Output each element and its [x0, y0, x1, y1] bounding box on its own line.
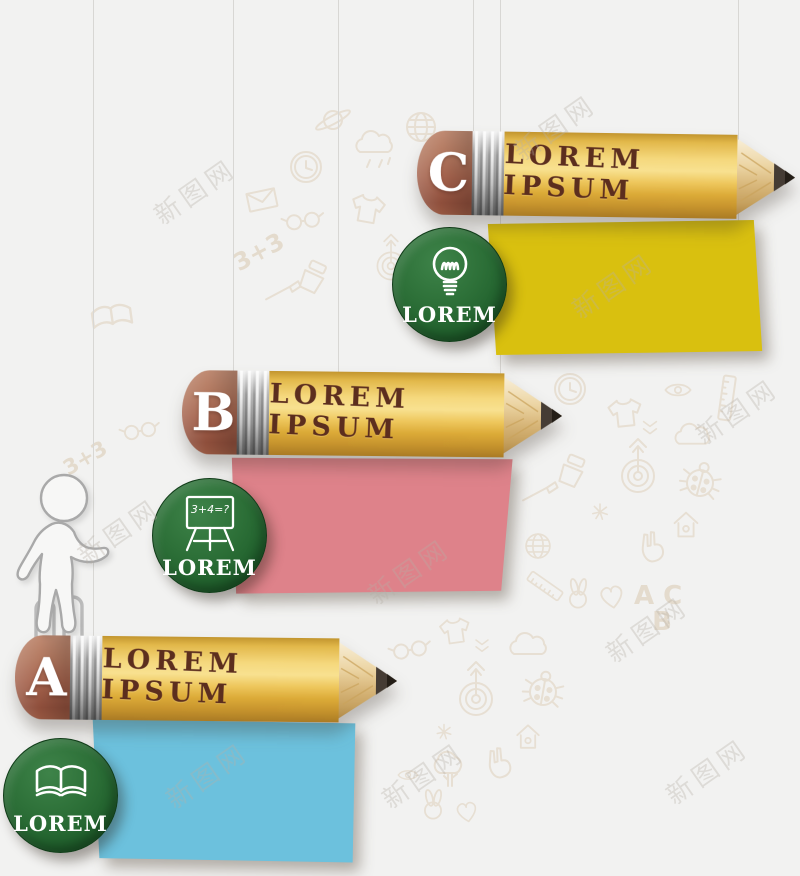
target-doodle-icon — [460, 662, 492, 715]
glasses-doodle-icon — [119, 421, 161, 441]
pencil-option-a: A LOREM IPSUM — [15, 635, 398, 723]
open-book-icon — [30, 756, 92, 808]
badge-reading: LOREM — [3, 738, 118, 853]
badge-label: LOREM — [402, 302, 497, 327]
globe-doodle-icon — [526, 534, 550, 558]
rain-cloud-doodle-icon — [356, 131, 392, 167]
eye-doodle-icon — [665, 385, 690, 396]
ruler-doodle-icon — [527, 571, 563, 601]
t-shirt-doodle-icon — [608, 398, 643, 427]
pencil-body: LOREM IPSUM — [503, 132, 737, 219]
hanging-string — [473, 0, 474, 136]
pencil-tip-icon — [736, 135, 795, 220]
leaf-doodle-icon — [593, 504, 607, 519]
pencil-label: LOREM IPSUM — [503, 139, 739, 212]
pencil-eraser-cap: B — [182, 370, 238, 455]
pencil-option-b: B LOREM IPSUM — [182, 370, 563, 458]
stick-figure-icon — [12, 470, 116, 642]
hanging-string — [338, 0, 339, 372]
paint-tube-doodle-icon — [298, 259, 328, 294]
pencil-option-c: C LOREM IPSUM — [416, 130, 795, 219]
ladybug-doodle-icon — [521, 668, 566, 708]
badge-label: LOREM — [162, 555, 257, 580]
sticky-note-surface — [229, 455, 514, 595]
pencil-tip-icon — [504, 373, 563, 458]
heart-doodle-icon — [457, 802, 478, 823]
pencil-body: LOREM IPSUM — [102, 636, 340, 722]
t-shirt-doodle-icon — [439, 617, 471, 644]
heart-doodle-icon — [600, 585, 624, 609]
sticky-note-blue — [90, 716, 358, 864]
sticky-note-surface — [90, 716, 358, 864]
open-book-doodle-icon — [91, 303, 132, 327]
pencil-eraser-cap: C — [416, 130, 472, 215]
target-doodle-icon — [622, 439, 654, 492]
doodle-abc-text: A C B — [634, 583, 682, 635]
hanging-string — [233, 0, 234, 374]
sticky-note-yellow — [485, 220, 765, 355]
badge-idea: LOREM — [392, 227, 507, 342]
paintbrush-doodle-icon — [523, 474, 559, 510]
cloud-doodle-icon — [510, 633, 546, 654]
option-letter-c: C — [427, 142, 469, 204]
pencil-tip-icon — [339, 638, 398, 723]
pencil-ferrule — [471, 131, 504, 215]
ruler-doodle-icon — [718, 375, 736, 420]
sticky-note-pink — [229, 455, 514, 595]
ladybug-doodle-icon — [677, 458, 724, 501]
glasses-doodle-icon — [281, 211, 325, 231]
paintbrush-doodle-icon — [266, 273, 302, 309]
badge-lesson: 3+4=? LOREM — [152, 478, 267, 593]
cloud-doodle-icon — [675, 424, 709, 444]
pencil-ferrule — [237, 371, 270, 455]
chevron-doodle-icon — [476, 640, 488, 651]
option-letter-b: B — [191, 382, 236, 443]
rabbit-doodle-icon — [424, 789, 442, 818]
envelope-doodle-icon — [246, 188, 277, 211]
house-doodle-icon — [675, 513, 698, 537]
house-doodle-icon — [517, 725, 539, 748]
peace-hand-doodle-icon — [486, 746, 513, 779]
clock-doodle-icon — [291, 152, 321, 182]
chevron-doodle-icon — [644, 422, 657, 434]
badge-label: LOREM — [13, 811, 108, 836]
pencil-label: LOREM IPSUM — [101, 643, 340, 715]
paint-tube-doodle-icon — [557, 453, 586, 487]
t-shirt-doodle-icon — [350, 193, 386, 224]
rabbit-doodle-icon — [569, 578, 587, 607]
pencil-body: LOREM IPSUM — [269, 371, 505, 457]
lightbulb-icon — [424, 243, 476, 299]
sticky-note-surface — [485, 220, 765, 355]
peace-hand-doodle-icon — [639, 530, 664, 563]
tree-doodle-icon — [435, 752, 461, 786]
option-letter-a: A — [26, 647, 67, 708]
chalkboard-equation: 3+4=? — [190, 503, 228, 516]
eye-doodle-icon — [398, 771, 418, 779]
pencil-label: LOREM IPSUM — [268, 378, 505, 450]
leaf-doodle-icon — [437, 725, 451, 739]
pencil-eraser-cap: A — [15, 635, 71, 720]
infographic-canvas: 3+3 3+3 A C B C LOREM IPSUM LOREM — [0, 0, 800, 876]
chalkboard-icon: 3+4=? — [182, 492, 238, 552]
saturn-doodle-icon — [312, 107, 353, 133]
pencil-ferrule — [70, 636, 103, 720]
